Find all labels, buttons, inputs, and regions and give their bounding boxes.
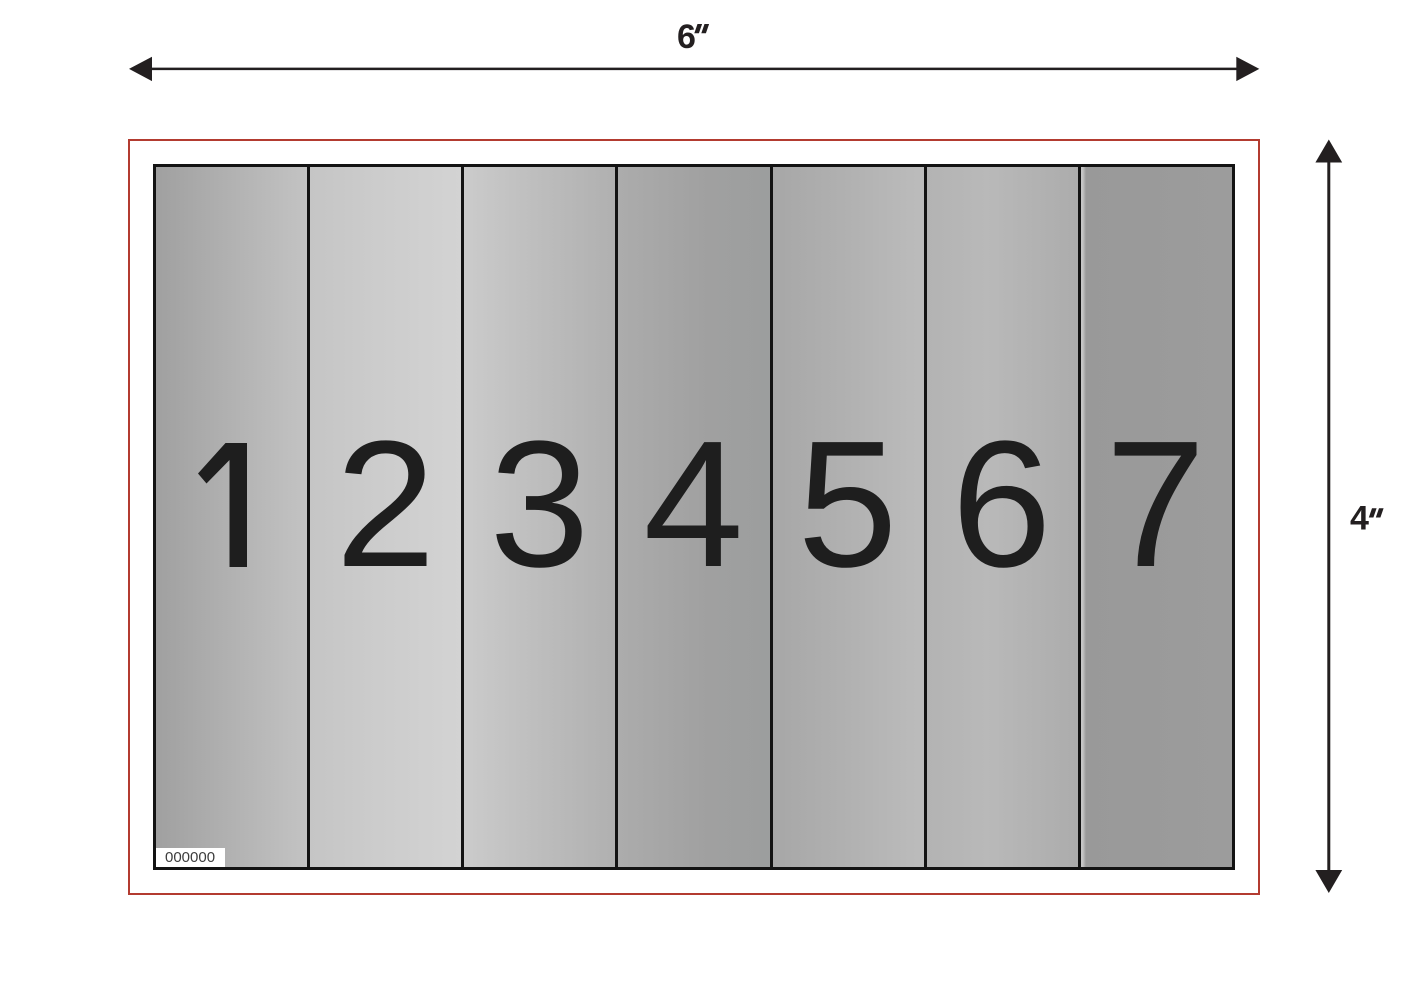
svg-text:6: 6	[677, 18, 696, 56]
svg-text:4: 4	[1350, 500, 1369, 538]
